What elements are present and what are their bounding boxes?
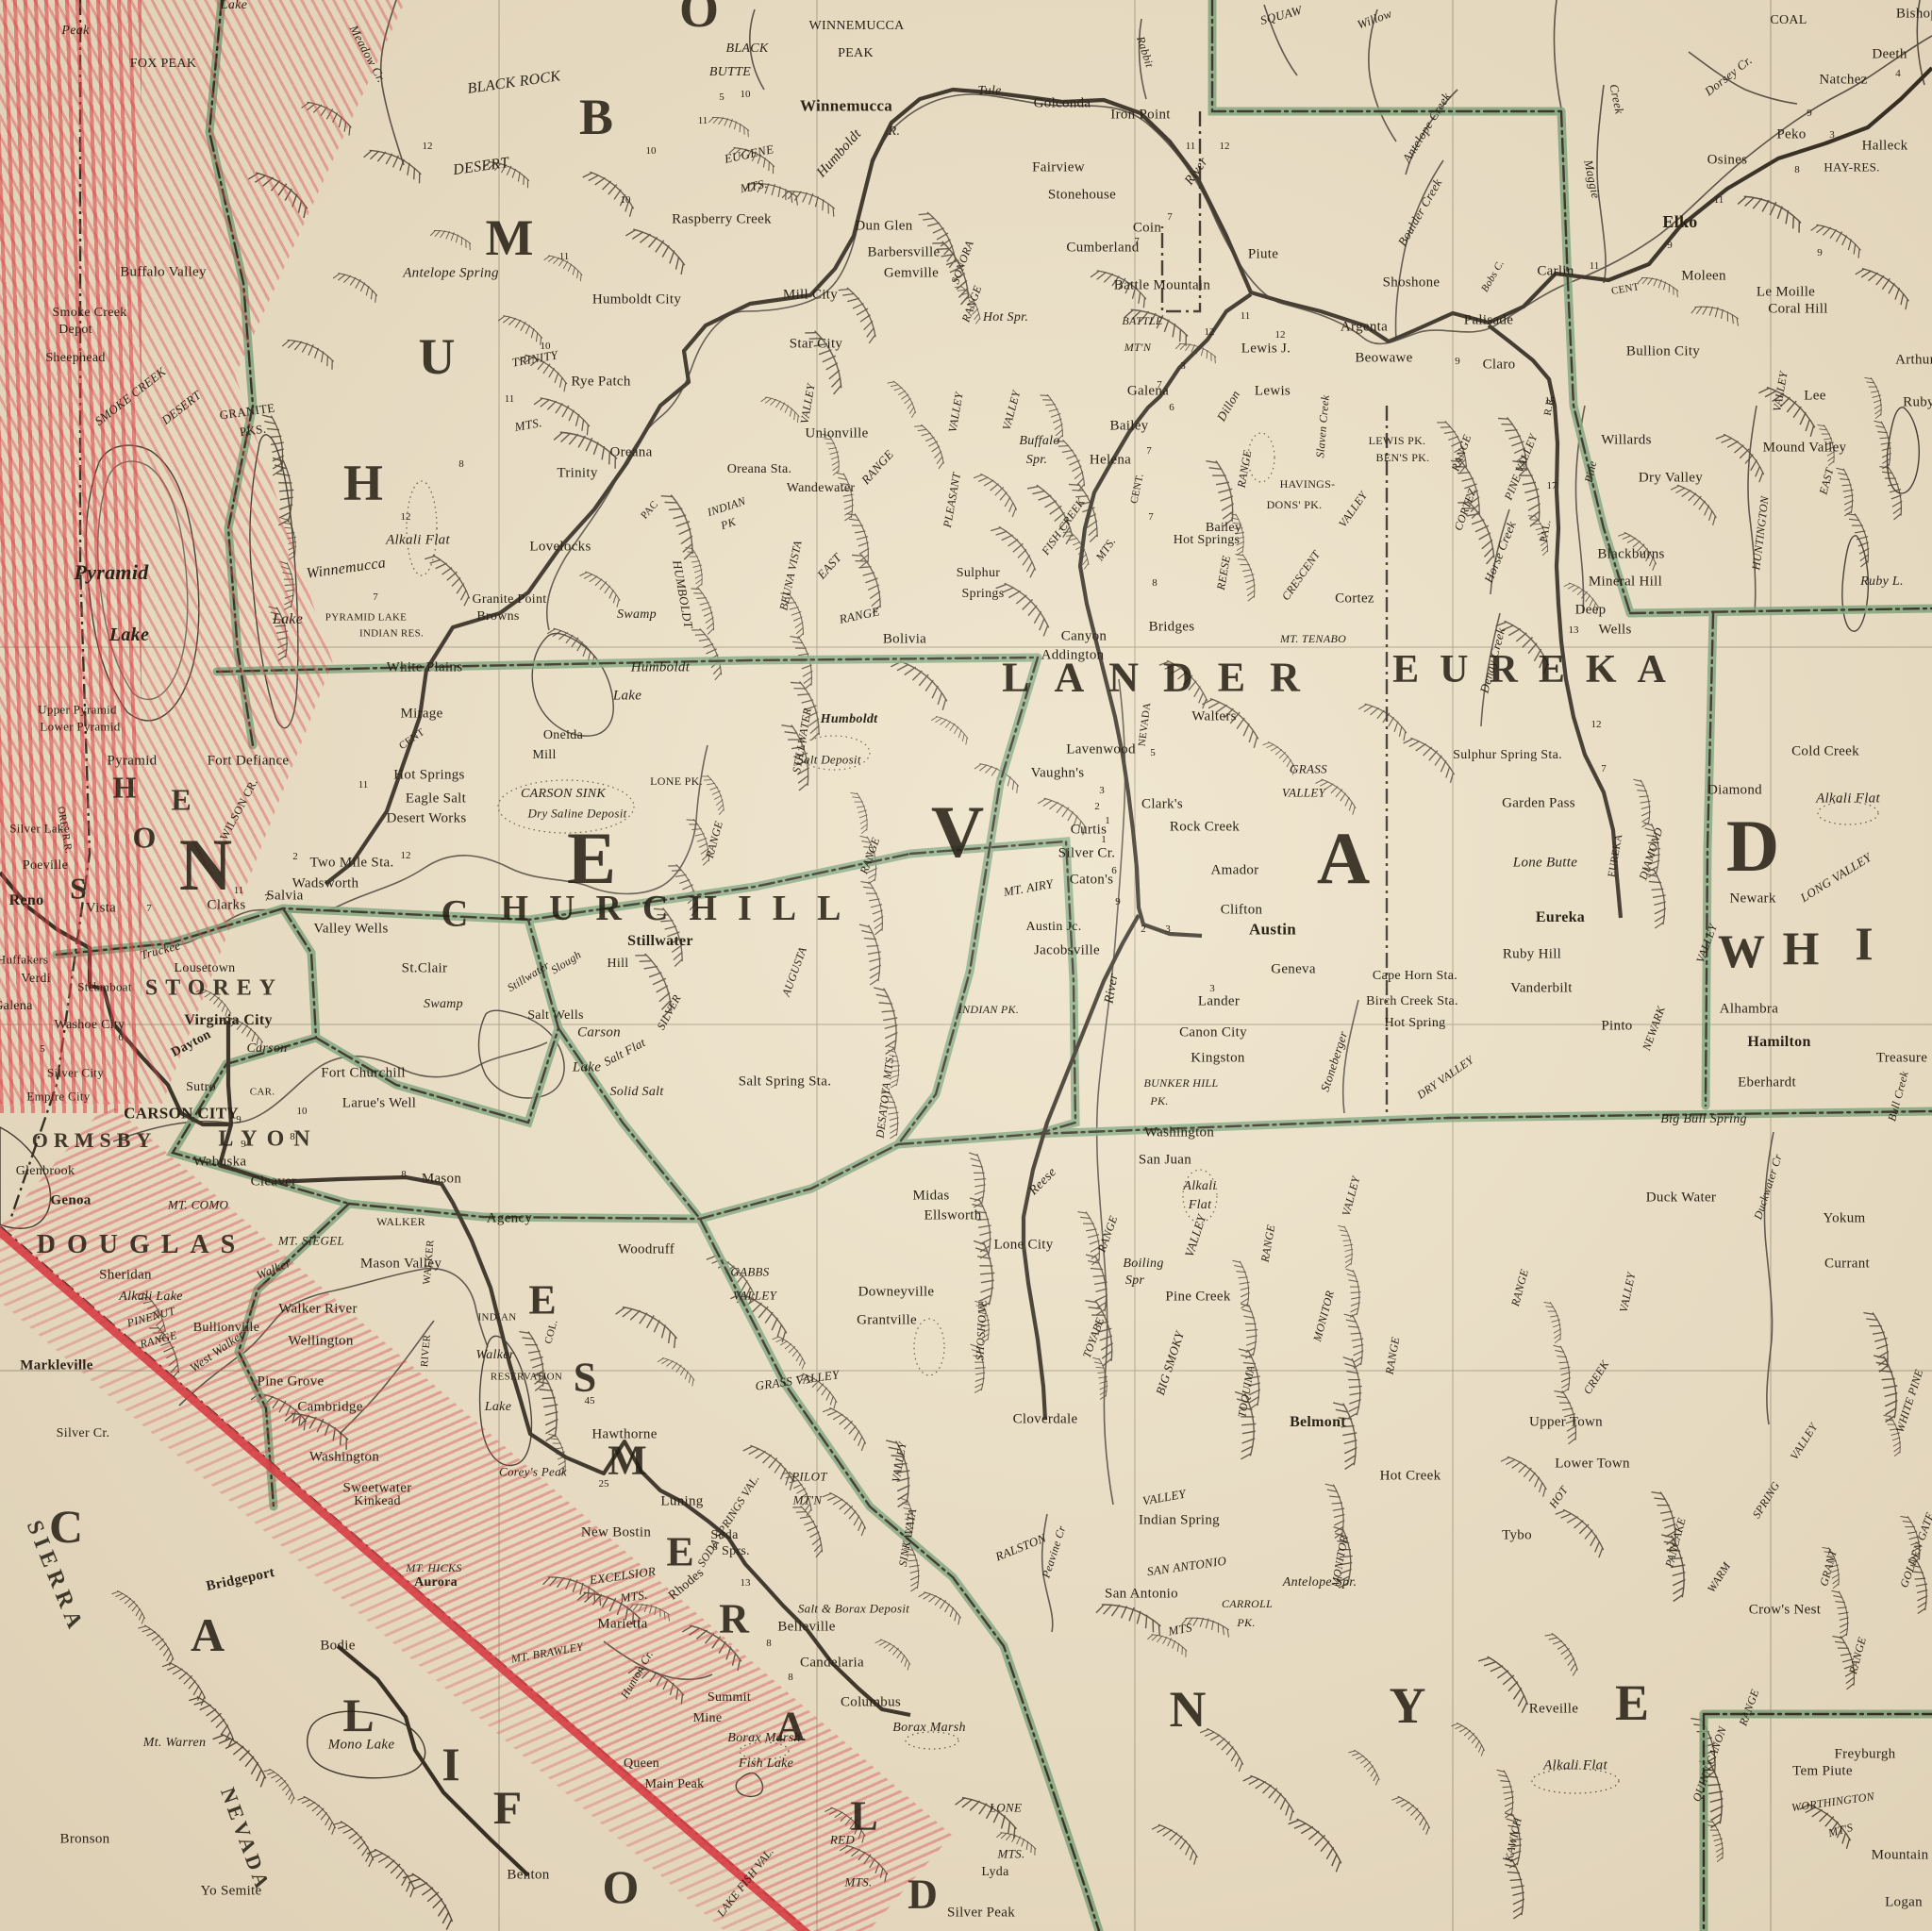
map-label: Kinkead: [354, 1495, 401, 1508]
map-label: Humboldt: [821, 713, 878, 726]
map-label: Stonehouse: [1048, 189, 1116, 203]
map-label: Lee: [1804, 390, 1825, 404]
map-label: Spr.: [1026, 454, 1048, 467]
rail-mileage-number: 11: [88, 980, 98, 991]
rail-mileage-number: 11: [505, 393, 515, 405]
map-label: Cold Creek: [1791, 745, 1859, 759]
rail-mileage-number: 15: [1545, 395, 1556, 407]
map-label: Lone Butte: [1513, 857, 1577, 871]
map-label: Valley Wells: [313, 923, 388, 937]
rail-mileage-number: 10: [297, 1106, 308, 1117]
map-label: HAY-RES.: [1824, 161, 1879, 174]
map-label: PYRAMID LAKE: [325, 613, 407, 624]
map-label: Argenta: [1341, 321, 1388, 335]
map-label: Hot Springs: [1174, 534, 1241, 547]
map-label: MTS.: [620, 1589, 649, 1605]
map-label: MTS.: [514, 416, 543, 433]
map-label: Beowawe: [1355, 352, 1412, 366]
state-name-letter: D: [1726, 804, 1779, 889]
rail-mileage-number: 3: [1180, 360, 1186, 372]
rail-mileage-number: 7: [1157, 379, 1162, 391]
map-label: Bridgeport: [205, 1566, 275, 1594]
map-label: MT'N: [1124, 341, 1151, 353]
map-label: Bodie: [320, 1640, 355, 1654]
map-label: CAR.: [250, 1088, 275, 1098]
map-label: Lake: [273, 612, 303, 627]
map-label: Deeth: [1872, 48, 1907, 62]
map-label: Truckee: [139, 939, 181, 961]
map-label: Eureka: [1536, 910, 1585, 925]
map-label: HUMBOLDT: [671, 559, 695, 629]
map-label: TRINITY: [511, 348, 559, 368]
map-label: Washington: [309, 1451, 379, 1465]
map-label: Sheephead: [45, 352, 105, 365]
map-label: PILOT: [791, 1471, 827, 1483]
map-label: Tybo: [1502, 1529, 1532, 1543]
map-label: Bullionville: [193, 1322, 260, 1335]
map-label: Vaughn's: [1031, 767, 1085, 781]
map-label: Washington: [1144, 1126, 1214, 1140]
rail-mileage-number: 17: [1547, 480, 1557, 491]
rail-mileage-number: 3: [1829, 129, 1835, 141]
map-label: Empire City: [26, 1090, 90, 1103]
state-or-county-letter: F: [493, 1780, 523, 1835]
rail-mileage-number: 5: [1150, 747, 1156, 758]
state-or-county-letter: A: [775, 1703, 806, 1751]
rail-mileage-number: 12: [401, 850, 411, 861]
map-label: Silver City: [47, 1067, 104, 1079]
map-label: Creek: [1607, 83, 1625, 115]
rail-mileage-number: 7: [264, 892, 270, 904]
map-label: WALKER: [422, 1240, 436, 1285]
map-label: Ellsworth: [924, 1209, 981, 1224]
map-label: FOX PEAK: [130, 58, 196, 71]
map-label: PANCAKE: [1663, 1516, 1688, 1568]
rail-mileage-number: 13: [741, 1577, 751, 1589]
map-label: INDIAN: [706, 495, 746, 518]
rail-mileage-number: 8: [401, 1169, 407, 1180]
map-label: Ruby: [1903, 396, 1932, 410]
map-label: Mason: [422, 1173, 461, 1187]
map-label: Carson: [577, 1026, 621, 1040]
map-label: SINKAVATA: [897, 1507, 919, 1567]
map-label: NEVADA: [1138, 702, 1154, 747]
map-label: Cloverdale: [1013, 1413, 1078, 1427]
map-label: Osines: [1707, 154, 1748, 168]
map-label: Mirage: [400, 707, 442, 722]
map-label: CARSON CITY: [124, 1106, 239, 1122]
map-label: Reveille: [1529, 1703, 1578, 1717]
map-label: Sulphur: [957, 567, 1000, 580]
rail-mileage-number: 11: [234, 885, 244, 896]
rail-mileage-number: 11: [1241, 310, 1251, 322]
map-label: MT. SIEGEL: [278, 1235, 344, 1247]
map-label: HAVINGS-: [1280, 478, 1336, 490]
map-label: SONORA: [949, 239, 975, 285]
map-label: WALKER: [376, 1216, 425, 1227]
map-label: White Plains: [387, 661, 463, 675]
map-label: SPRING: [1750, 1480, 1781, 1521]
rail-mileage-number: 1: [1101, 834, 1107, 845]
map-label: DESERT: [452, 156, 509, 178]
rail-mileage-number: 9: [1807, 108, 1812, 119]
map-label: Bishop: [1896, 8, 1932, 22]
rail-mileage-number: 8: [788, 1672, 793, 1683]
map-label: QUINN CANON: [1690, 1725, 1728, 1804]
state-or-county-letter: O: [603, 1859, 640, 1914]
map-label: VALLEY: [1183, 1213, 1208, 1258]
map-label: Mountain: [1872, 1849, 1929, 1863]
map-label: HOT: [1547, 1484, 1570, 1509]
state-or-county-letter: H: [113, 771, 137, 806]
map-label: CENT: [398, 727, 427, 752]
map-label: LAKE FISH VAL.: [715, 1845, 775, 1919]
map-label: Reno: [9, 893, 44, 908]
map-label: Claro: [1483, 358, 1516, 373]
rail-mileage-number: 2: [292, 851, 298, 862]
state-or-county-letter: L: [850, 1792, 877, 1840]
rail-mileage-number: 3: [1099, 785, 1105, 796]
map-label: Dayton: [170, 1028, 214, 1060]
map-label: Helena: [1090, 454, 1131, 468]
map-label: SMOKE CREEK: [92, 365, 168, 427]
map-label: BUNKER HILL: [1144, 1077, 1219, 1089]
map-label: Swamp: [424, 998, 463, 1011]
map-label: Geneva: [1271, 963, 1316, 977]
map-label: Alkali Flat: [1543, 1759, 1607, 1773]
state-or-county-letter: H: [1783, 921, 1820, 975]
rail-mileage-number: 8: [1152, 577, 1158, 589]
map-label: MTS.: [1093, 536, 1117, 563]
map-label: Carson: [246, 1042, 287, 1056]
state-or-county-letter: C: [441, 891, 469, 936]
map-label: SQUAW: [1259, 4, 1304, 26]
map-label: Bailey: [1110, 420, 1149, 434]
map-label: RANGE: [139, 1329, 178, 1350]
rail-mileage-number: 12: [423, 141, 433, 152]
map-label: Blackburns: [1597, 548, 1664, 562]
map-label: Swamp: [617, 608, 657, 622]
rail-mileage-number: 11: [559, 251, 570, 262]
county-name: EUREKA: [1392, 647, 1687, 692]
map-label: RANGE: [858, 836, 881, 875]
map-label: Humboldt: [815, 127, 865, 180]
map-label: PINE VALLEY: [1503, 432, 1540, 501]
map-label: Borax Marsh: [892, 1722, 966, 1735]
map-label: Hot Creek: [1380, 1470, 1441, 1484]
map-label: RANGE: [838, 605, 880, 625]
rail-mileage-number: 10: [541, 341, 551, 352]
map-label: Lewis: [1255, 385, 1291, 399]
map-label: Browns: [476, 610, 519, 624]
map-label: RANGE: [1384, 1336, 1402, 1375]
map-label: Currant: [1824, 1257, 1870, 1272]
map-label: Markleville: [20, 1359, 92, 1373]
county-name: NEVADA: [215, 1784, 275, 1894]
rail-mileage-number: 5: [719, 92, 724, 103]
map-label: Crow's Nest: [1749, 1604, 1821, 1618]
map-label: Pyramid: [108, 755, 158, 769]
map-label: TOQUIMA: [1236, 1364, 1257, 1418]
rail-mileage-number: 7: [1146, 445, 1152, 457]
map-label: Spr: [1125, 1274, 1144, 1288]
map-label: VALLEY: [1618, 1272, 1638, 1313]
map-label: Vista: [86, 902, 116, 916]
map-label: Coin: [1133, 222, 1161, 236]
map-label: Iron Point: [1110, 108, 1170, 123]
map-label: Benton: [507, 1869, 549, 1883]
map-label: Bull Creek: [1886, 1070, 1910, 1122]
rail-mileage-number: 9: [1667, 240, 1673, 251]
map-label: LONG VALLEY: [1798, 851, 1874, 904]
rail-mileage-number: 7: [1134, 236, 1140, 247]
map-label: Yokum: [1824, 1212, 1866, 1226]
map-label: VALLEY: [1282, 787, 1325, 799]
map-label: Virginia City: [184, 1013, 273, 1028]
map-label: BATTLE: [1122, 315, 1162, 326]
map-label: PKS.: [239, 423, 267, 439]
map-label: Granite Point: [473, 593, 547, 607]
map-label: Logan: [1885, 1896, 1923, 1910]
map-label: Mt. Warren: [143, 1737, 207, 1750]
map-label: Silver Cr.: [1058, 847, 1116, 861]
rail-mileage-number: 12: [1275, 329, 1286, 341]
map-label: RANGE: [1847, 1636, 1868, 1675]
map-label: Cape Horn Sta.: [1373, 970, 1457, 983]
map-label: Hill: [608, 957, 629, 971]
map-label: AUGUSTA: [780, 945, 808, 997]
map-label: Cumberland: [1066, 241, 1139, 256]
map-label: Lake: [485, 1401, 511, 1414]
map-label: Peko: [1776, 128, 1806, 142]
map-label: Mound Valley: [1763, 441, 1847, 456]
map-label: Wabuska: [193, 1156, 247, 1170]
map-label: Belleville: [777, 1621, 835, 1635]
map-label: Lewis J.: [1241, 342, 1291, 357]
map-label: MTS.: [739, 177, 768, 195]
map-label: Stillwater: [627, 934, 693, 949]
map-label: MT'S: [1827, 1822, 1855, 1839]
map-label: RANGE: [1509, 1268, 1530, 1307]
map-label: RIVER: [420, 1334, 433, 1367]
map-label: Rye Patch: [571, 375, 630, 390]
state-or-county-letter: E: [528, 1276, 556, 1324]
map-label: Wandewater: [787, 482, 856, 495]
map-label: Amador: [1211, 864, 1259, 878]
map-label: Marietta: [597, 1618, 647, 1632]
map-label: Indian Spring: [1139, 1514, 1220, 1528]
map-label: Peak: [61, 25, 89, 38]
map-label: Columbus: [841, 1696, 901, 1710]
map-label: Caton's: [1070, 874, 1113, 888]
map-label: Walters: [1191, 710, 1237, 724]
rail-mileage-number: 12: [1591, 719, 1602, 730]
rail-mileage-number: 3: [1209, 983, 1215, 994]
map-label: Unionville: [805, 427, 868, 441]
map-label: DONS' PK.: [1267, 499, 1323, 510]
map-label: Cortez: [1335, 592, 1374, 607]
map-label: Lyda: [981, 1866, 1008, 1879]
map-label: HUNTINGTON: [1750, 495, 1771, 571]
map-label: INDIAN RES.: [359, 629, 424, 640]
rail-mileage-number: 9: [236, 1114, 241, 1125]
rail-mileage-number: 13: [1569, 624, 1579, 636]
map-label: Silver Peak: [947, 1906, 1015, 1921]
rail-mileage-number: 9: [1455, 356, 1460, 367]
map-label: Oneida: [543, 729, 583, 742]
map-label: Bullion City: [1626, 345, 1700, 359]
map-label: Coral Hill: [1768, 303, 1827, 317]
map-label: Queen: [624, 1757, 659, 1771]
map-label: Smoke Creek: [52, 307, 126, 320]
map-label: DRY VALLEY: [1415, 1054, 1475, 1101]
county-name: DOUGLAS: [37, 1230, 246, 1260]
map-label: Boulder Creek: [1395, 176, 1443, 247]
map-label: Sulphur Spring Sta.: [1453, 749, 1562, 762]
rail-mileage-number: 7: [1148, 511, 1154, 523]
rail-mileage-number: 10: [621, 194, 631, 206]
map-label: Larue's Well: [342, 1097, 417, 1111]
state-or-county-letter: I: [441, 1737, 459, 1791]
map-label: Stoneberger: [1319, 1029, 1350, 1092]
map-label: RANGE: [1259, 1224, 1277, 1263]
map-label: Salt Deposit: [797, 754, 861, 766]
map-label: Cleaver: [251, 1175, 297, 1190]
map-label: Slough: [549, 949, 583, 976]
map-label: Halleck: [1862, 140, 1908, 154]
map-label: MTS.: [997, 1848, 1024, 1860]
map-label: CENT: [1610, 282, 1640, 297]
map-label: MONITOR: [1311, 1290, 1336, 1342]
map-label: Oreana Sta.: [727, 463, 792, 476]
map-label: VALLEY: [1337, 490, 1369, 529]
county-name: HURCHILL: [501, 888, 862, 929]
map-label: LONE: [990, 1802, 1022, 1814]
state-or-county-letter: M: [608, 1437, 647, 1485]
map-label: Dry Valley: [1639, 472, 1703, 486]
map-label: RANGE: [959, 284, 983, 324]
map-label: Bridges: [1149, 621, 1195, 635]
map-label: Lone City: [993, 1239, 1053, 1253]
map-label: VALLEY: [1771, 371, 1789, 412]
map-label: Horse Creek: [1482, 520, 1518, 585]
map-label: EUREKA: [1607, 833, 1625, 878]
map-label: GRASS VALLEY: [755, 1368, 841, 1391]
map-label: BLACK ROCK: [467, 69, 562, 97]
state-or-county-letter: O: [679, 0, 719, 39]
map-label: Winnemucca: [306, 556, 387, 582]
county-name: LYON: [218, 1127, 319, 1153]
map-label: RANGE: [1737, 1688, 1760, 1727]
map-label: Downeyville: [858, 1286, 935, 1300]
map-label: Fort Churchill: [321, 1067, 406, 1081]
map-label: PINENUT: [125, 1305, 175, 1328]
state-or-county-letter: O: [133, 821, 157, 856]
map-label: Trinity: [557, 467, 597, 481]
map-label: San Antonio: [1105, 1588, 1178, 1602]
rail-mileage-number: 11: [358, 779, 369, 791]
rail-mileage-number: 1: [1105, 815, 1110, 826]
state-name-letter: A: [1317, 816, 1370, 901]
map-label: MT. COMO: [168, 1199, 228, 1211]
map-label: Luning: [660, 1495, 703, 1509]
state-or-county-letter: A: [191, 1607, 225, 1662]
state-or-county-letter: E: [1615, 1673, 1649, 1732]
rail-mileage-number: 8: [766, 1638, 772, 1649]
map-label: Lousetown: [175, 962, 236, 975]
state-or-county-letter: U: [419, 327, 456, 386]
state-or-county-letter: S: [70, 872, 87, 907]
map-label: Solid Salt: [609, 1086, 663, 1099]
map-label: Elko: [1662, 213, 1697, 230]
map-label: RANGE: [1095, 1214, 1119, 1254]
map-label: Humboldt City: [592, 293, 681, 308]
map-label: RANGE: [704, 820, 724, 859]
map-label: Hunton Cr.: [619, 1649, 656, 1701]
map-label: Midas: [913, 1190, 950, 1204]
map-label: VALLEY: [1694, 923, 1719, 964]
map-label: VALLEY: [1789, 1422, 1820, 1462]
map-label: MT. BRAWLEY: [510, 1640, 584, 1664]
map-label: Candelaria: [800, 1656, 864, 1671]
map-label: Deep: [1575, 604, 1607, 618]
map-label: Main Peak: [645, 1778, 705, 1791]
map-label: Reese: [1027, 1166, 1059, 1198]
map-label: River: [1183, 156, 1211, 188]
map-label: Lavenwood: [1066, 743, 1136, 757]
map-label: Pine Creek: [1165, 1290, 1230, 1305]
map-label: Sutro: [186, 1081, 216, 1094]
map-label: Jacobsville: [1034, 944, 1100, 958]
rail-mileage-number: 11: [1590, 260, 1600, 272]
map-label: MTS: [1167, 1621, 1192, 1637]
map-label: Tem Piute: [1792, 1765, 1853, 1779]
map-label: Glenbrook: [16, 1165, 75, 1178]
map-label: St.Clair: [402, 962, 448, 976]
map-label: Pine: [1583, 459, 1599, 483]
rail-mileage-number: 4: [1895, 68, 1901, 79]
map-label: VALLEY: [890, 1441, 908, 1483]
map-label: RANGE: [859, 448, 896, 487]
map-label: Fairview: [1032, 161, 1085, 175]
map-label: Mill City: [783, 289, 838, 303]
map-label: MT. HICKS: [406, 1562, 461, 1573]
state-or-county-letter: B: [579, 88, 613, 146]
map-label: Palisade: [1464, 314, 1513, 328]
map-label: Alkali: [1183, 1180, 1216, 1193]
map-label: Duckwater Cr: [1752, 1153, 1784, 1221]
map-label: EXCELSIOR: [589, 1565, 657, 1587]
map-label: New Bostin: [581, 1526, 651, 1540]
map-label: RESERVATION: [491, 1373, 562, 1383]
map-label: Hamilton: [1747, 1035, 1810, 1050]
map-label: Huffakers: [0, 954, 48, 966]
map-label: WINNEMUCCA: [809, 20, 905, 33]
map-label: Mill: [532, 749, 556, 762]
map-label: Austin: [1249, 922, 1296, 938]
map-label: RANGE: [1236, 449, 1254, 489]
map-label: Carlin: [1537, 265, 1574, 279]
map-label: Duck Water: [1646, 1191, 1716, 1206]
map-label: Salvia: [266, 890, 303, 904]
map-label: FISH CREEK: [1040, 496, 1087, 557]
map-label: Humboldt: [631, 661, 690, 675]
map-label: Austin Jc.: [1026, 921, 1082, 934]
map-label: Stillwater: [506, 959, 551, 993]
map-label: BUTTE: [709, 66, 751, 79]
map-label: Lake: [613, 690, 641, 704]
map-label: Le Moille: [1757, 286, 1815, 300]
